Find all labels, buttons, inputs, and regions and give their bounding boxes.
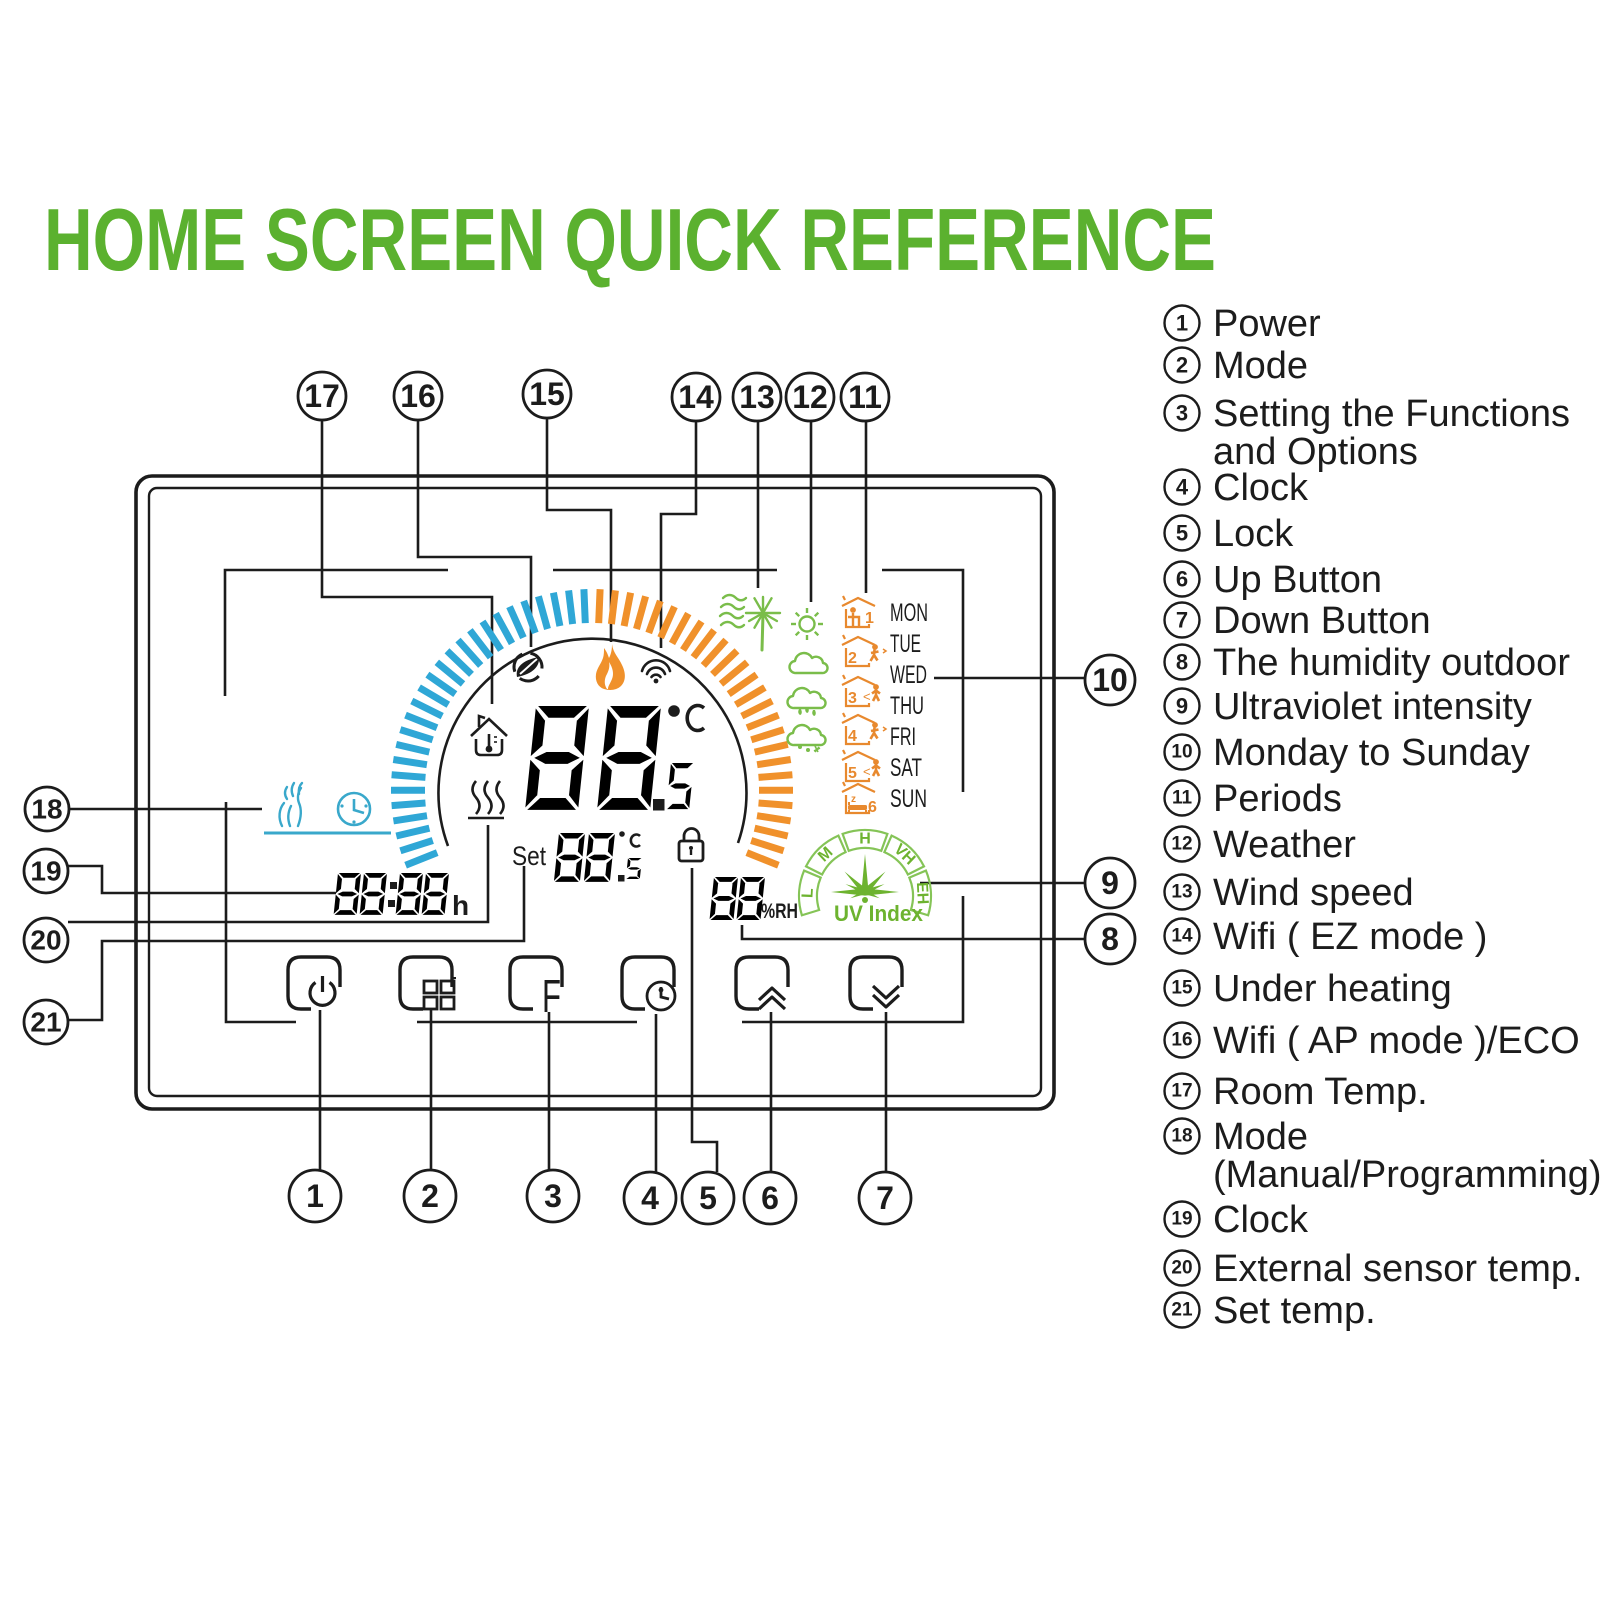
svg-text:Periods: Periods bbox=[1213, 778, 1342, 820]
svg-text:10: 10 bbox=[1092, 662, 1128, 698]
svg-text:5: 5 bbox=[848, 765, 857, 782]
svg-text:Under heating: Under heating bbox=[1213, 968, 1452, 1010]
svg-text:10: 10 bbox=[1171, 742, 1192, 763]
svg-text:19: 19 bbox=[30, 856, 61, 887]
svg-text:The humidity outdoor: The humidity outdoor bbox=[1213, 642, 1570, 684]
svg-text:Mode: Mode bbox=[1213, 345, 1308, 387]
svg-text:Down Button: Down Button bbox=[1213, 600, 1431, 642]
svg-text:Clock: Clock bbox=[1213, 1199, 1309, 1241]
svg-text:14: 14 bbox=[1171, 926, 1193, 947]
svg-text:5: 5 bbox=[1176, 521, 1188, 546]
svg-text:Mode: Mode bbox=[1213, 1116, 1308, 1158]
svg-text:20: 20 bbox=[30, 925, 61, 956]
svg-text:15: 15 bbox=[529, 376, 565, 412]
svg-text:Power: Power bbox=[1213, 303, 1321, 345]
svg-text:SUN: SUN bbox=[890, 785, 927, 813]
svg-text:<: < bbox=[863, 689, 871, 704]
svg-text:HOME SCREEN QUICK REFERENCE: HOME SCREEN QUICK REFERENCE bbox=[44, 190, 1216, 289]
svg-text:20: 20 bbox=[1171, 1258, 1192, 1279]
svg-text:Up Button: Up Button bbox=[1213, 559, 1382, 601]
svg-text:L: L bbox=[799, 888, 816, 899]
svg-text:6: 6 bbox=[1176, 567, 1188, 592]
svg-text:1: 1 bbox=[1176, 311, 1188, 336]
svg-text:21: 21 bbox=[30, 1007, 61, 1038]
svg-text:THU: THU bbox=[890, 692, 924, 720]
svg-text:Set temp.: Set temp. bbox=[1213, 1290, 1376, 1332]
svg-text:5: 5 bbox=[699, 1180, 717, 1216]
svg-text:21: 21 bbox=[1171, 1300, 1193, 1321]
svg-text:TUE: TUE bbox=[890, 630, 921, 658]
svg-text:Ultraviolet intensity: Ultraviolet intensity bbox=[1213, 686, 1532, 728]
svg-text:7: 7 bbox=[876, 1180, 894, 1216]
svg-text:Clock: Clock bbox=[1213, 467, 1309, 509]
svg-text:12: 12 bbox=[792, 379, 828, 415]
svg-text:16: 16 bbox=[1171, 1030, 1192, 1051]
svg-text:FRI: FRI bbox=[890, 723, 916, 751]
svg-text:18: 18 bbox=[31, 794, 62, 825]
svg-text:18: 18 bbox=[1171, 1126, 1192, 1147]
svg-text:15: 15 bbox=[1171, 978, 1193, 999]
svg-text:6: 6 bbox=[868, 799, 877, 816]
svg-text:F: F bbox=[542, 970, 561, 1022]
svg-text:3: 3 bbox=[1176, 401, 1188, 426]
svg-text:8: 8 bbox=[1101, 921, 1119, 957]
svg-text:SAT: SAT bbox=[890, 754, 922, 782]
svg-text:1: 1 bbox=[306, 1178, 324, 1214]
svg-text:4: 4 bbox=[1176, 475, 1189, 500]
svg-text:WED: WED bbox=[890, 661, 927, 689]
svg-text:2: 2 bbox=[848, 650, 857, 667]
svg-text:13: 13 bbox=[1171, 882, 1192, 903]
svg-text:External sensor temp.: External sensor temp. bbox=[1213, 1248, 1583, 1290]
svg-text:(Manual/Programming): (Manual/Programming) bbox=[1213, 1154, 1601, 1196]
svg-text:7: 7 bbox=[1176, 608, 1188, 633]
svg-text:16: 16 bbox=[400, 378, 436, 414]
svg-text:9: 9 bbox=[1101, 865, 1119, 901]
svg-text:19: 19 bbox=[1171, 1209, 1192, 1230]
svg-text:<: < bbox=[863, 764, 871, 779]
svg-text:9: 9 bbox=[1176, 694, 1188, 719]
svg-text:4: 4 bbox=[848, 728, 857, 745]
svg-text:h: h bbox=[452, 890, 469, 921]
svg-text:MON: MON bbox=[890, 599, 928, 627]
svg-text:Weather: Weather bbox=[1213, 824, 1356, 866]
svg-text:12: 12 bbox=[1171, 834, 1192, 855]
svg-text:1: 1 bbox=[865, 610, 874, 627]
svg-text:11: 11 bbox=[848, 379, 882, 415]
svg-text:13: 13 bbox=[739, 379, 775, 415]
svg-text:2: 2 bbox=[421, 1178, 439, 1214]
svg-text:Set: Set bbox=[512, 841, 546, 871]
svg-text:14: 14 bbox=[678, 379, 714, 415]
svg-text:8: 8 bbox=[1176, 650, 1188, 675]
svg-text:3: 3 bbox=[544, 1178, 562, 1214]
svg-text:Setting the Functions: Setting the Functions bbox=[1213, 393, 1570, 435]
svg-text:6: 6 bbox=[761, 1180, 779, 1216]
svg-text:Room Temp.: Room Temp. bbox=[1213, 1071, 1428, 1113]
svg-text:4: 4 bbox=[641, 1180, 659, 1216]
svg-text:UV Index: UV Index bbox=[834, 901, 924, 926]
svg-text:2: 2 bbox=[1176, 353, 1188, 378]
svg-text:Lock: Lock bbox=[1213, 513, 1294, 555]
svg-text:%RH: %RH bbox=[761, 900, 798, 923]
svg-text:17: 17 bbox=[304, 378, 340, 414]
svg-text:Monday to Sunday: Monday to Sunday bbox=[1213, 732, 1530, 774]
svg-text:17: 17 bbox=[1171, 1081, 1192, 1102]
svg-text:Wind speed: Wind speed bbox=[1213, 872, 1414, 914]
svg-text:Wifi ( AP mode )/ECO: Wifi ( AP mode )/ECO bbox=[1213, 1020, 1580, 1062]
svg-text:Wifi ( EZ mode ): Wifi ( EZ mode ) bbox=[1213, 916, 1487, 958]
svg-text:11: 11 bbox=[1172, 788, 1193, 809]
svg-text:H: H bbox=[859, 831, 871, 848]
svg-text:3: 3 bbox=[848, 690, 857, 707]
svg-text:z: z bbox=[851, 794, 856, 805]
